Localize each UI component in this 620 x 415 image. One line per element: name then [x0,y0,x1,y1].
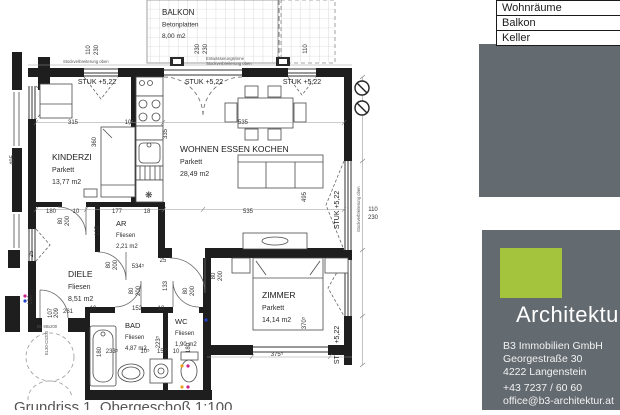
dim-label: 335 [163,128,169,139]
company-street: Georgestraße 30 [503,353,614,366]
dim-label: 25 [29,250,35,257]
room-finish: Fliesen [116,233,135,239]
dim-label: 230 [203,43,209,54]
dim-label: 375⁵ [271,351,284,358]
room-name: WOHNEN ESSEN KOCHEN [180,144,289,154]
dim-label: 200 [136,285,142,296]
dim-label: 10 [158,306,165,312]
room-area: 14,14 m2 [262,317,291,324]
dim-label: 180 [97,346,103,357]
room-finish: Parkett [180,159,202,166]
room-name: WC [175,317,188,326]
dim-label: 110 [86,45,92,55]
level-label: STUK +5,22 [78,79,116,86]
company-email: office@b3-architektur.at [503,395,614,408]
dim-label: 535 [238,120,249,126]
dim-label: 534⁵ [132,263,145,270]
dim-label: 10 [90,306,97,312]
room-finish: Fliesen [68,284,91,291]
tiny-annotation: Stockverbreiterung oben [356,186,361,232]
level-label: STUK +5,22 [334,191,341,229]
dim-label: 209 [54,307,60,318]
company-phone: +43 7237 / 60 60 [503,382,614,395]
dim-label: 157 [157,349,168,355]
dim-label: 233⁵ [106,348,119,355]
tiny-annotation: EL30-CS200 [44,330,49,355]
fridge-symbol: ❋ [145,190,153,200]
dim-label: 230 [195,43,201,54]
dim-label: 495 [10,154,16,165]
level-label: STUK +5,22 [185,79,223,86]
legend-row-balkon: Balkon [497,15,620,30]
dim-label: 200 [218,270,224,281]
dim-label: 360 [92,136,98,147]
dim-label: 80 [129,287,135,294]
stair-circle [26,333,74,400]
dim-label: 200 [65,215,71,226]
dim-label: 495 [302,191,308,202]
room-name: KINDERZI [52,152,92,162]
brand-wordmark: Architektur [516,302,620,328]
dim-label: 315 [68,120,79,126]
level-label: STUK +5,22 [283,79,321,86]
dim-label: 10 [125,120,132,126]
tiny-annotation: Stockverbreiterung oben [63,59,109,64]
dim-label: 80 [183,287,189,294]
brand-address: B3 Immobilien GmbH Georgestraße 30 4222 … [503,340,614,408]
level-label: STUK +5,22 [334,326,341,364]
dim-label: 230 [94,44,100,55]
dim-label: 200 [113,259,119,270]
company-city: 4222 Langenstein [503,366,614,379]
dim-label: 177 [112,209,123,215]
dim-label: 25 [160,258,167,264]
dim-label: 18 [144,209,151,215]
dim-label: 10 [173,349,180,355]
room-name: BALKON [162,8,195,17]
dim-label: 110 [368,207,378,213]
dim-label: 125 [95,225,101,236]
room-area: 2,21 m2 [116,244,138,250]
dim-label: 180 [28,294,34,305]
tiny-annotation: DL 98x200 [37,324,58,329]
real-estate-floorplan-page: { "legend": { "rows": ["Wohnräume", "Bal… [0,0,620,410]
room-area: 28,49 m2 [180,171,209,178]
room-name: BAD [125,321,141,330]
room-finish: Parkett [262,305,284,312]
room-area: 8,51 m2 [68,296,93,303]
dim-label: 80 [106,261,112,268]
downpipes [355,81,369,115]
tiny-annotation: Stockverbreiterung oben [206,61,252,66]
room-name: DIELE [68,269,93,279]
dim-label: 152 [132,306,143,312]
dim-label: 133 [163,280,169,291]
company-name: B3 Immobilien GmbH [503,340,614,353]
room-area: 13,77 m2 [52,179,81,186]
legend-row-wohnraeume: Wohnräume [497,0,620,15]
dim-label: 261 [63,309,74,315]
dim-label: 180 [186,342,192,353]
room-finish: Betonplatten [162,22,199,29]
dim-label: 80 [58,217,64,224]
room-finish: Fliesen [175,331,194,337]
dim-label: 80 [211,272,217,279]
dim-label: 370⁵ [301,316,308,329]
legend-row-keller: Keller [497,30,620,45]
dim-label: 230 [368,215,379,221]
room-finish: Fliesen [125,335,144,341]
dim-label: 10 [73,209,80,215]
dim-label: 223⁵ [155,335,162,348]
room-name: ZIMMER [262,290,296,300]
dim-label: 180 [46,209,57,215]
brand-logo-square [500,248,562,298]
dim-label: 10⁵ [140,348,150,355]
dim-label: 110 [303,44,309,54]
dim-label: 535 [243,209,254,215]
room-area: 8,00 m2 [162,33,186,40]
plan-caption: Grundriss 1. Obergeschoß 1:100 [14,399,232,410]
room-name: AR [116,219,127,228]
dim-label: 200 [190,285,196,296]
room-finish: Parkett [52,167,74,174]
gray-panel-top [479,44,620,197]
room-legend-table: Wohnräume Balkon Keller [496,0,620,46]
brand-panel: Architektur B3 Immobilien GmbH Georgestr… [482,230,620,410]
